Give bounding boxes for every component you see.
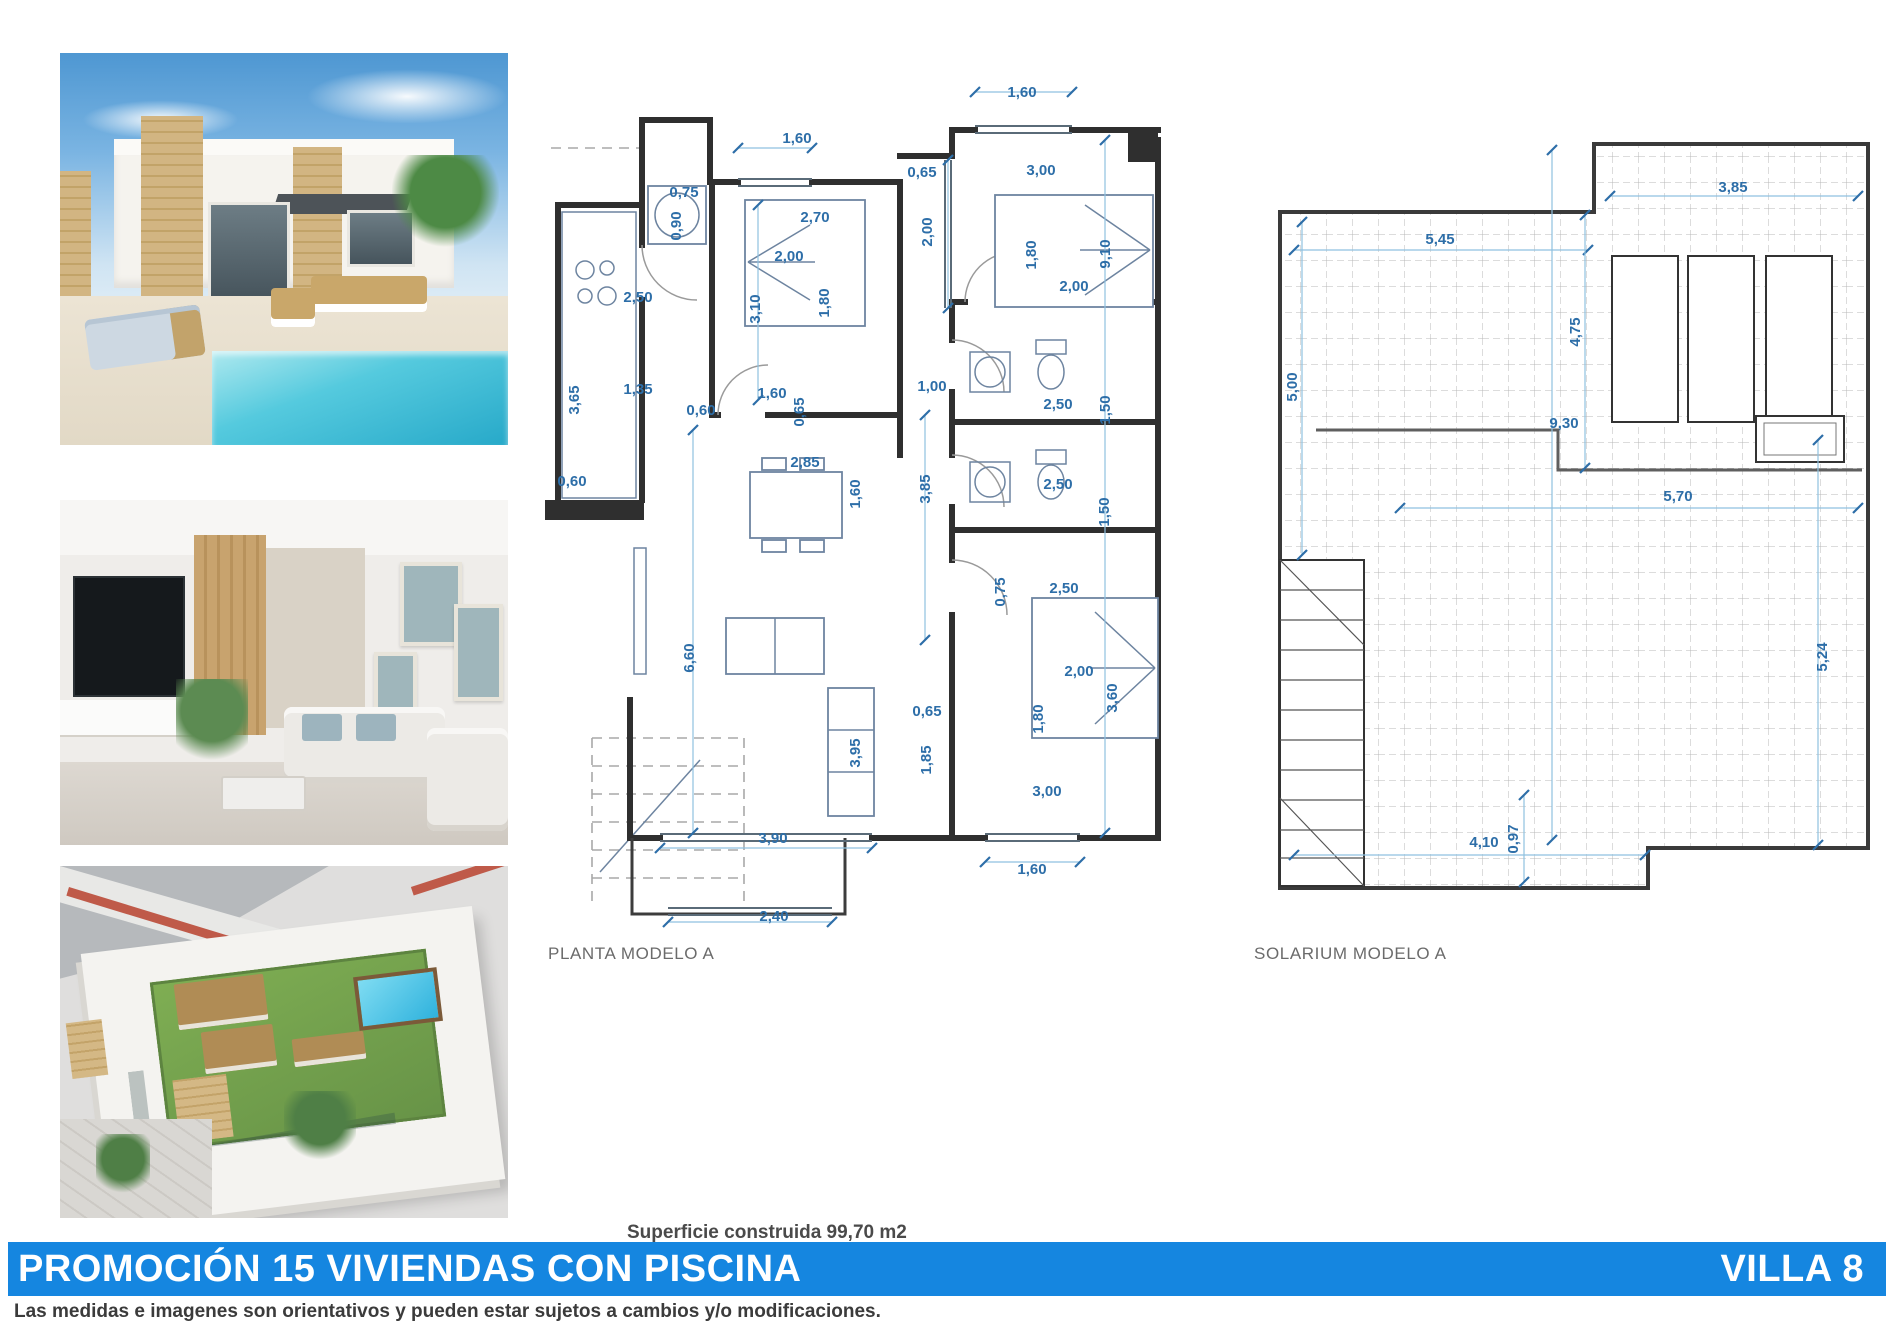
kitchen-counter (562, 212, 636, 498)
dimension-label: 5,00 (1284, 372, 1301, 401)
disclaimer-text: Las medidas e imagenes son orientativos … (14, 1301, 881, 1323)
dimension-label: 2,00 (1059, 278, 1088, 295)
bathroom2-cistern (1036, 450, 1066, 464)
dimension-label: 2,50 (623, 289, 652, 306)
tv-sideboard (634, 548, 646, 674)
dimension-label: 4,10 (1469, 834, 1498, 851)
dimension-label: 1,60 (847, 479, 864, 508)
rattan-sofa (201, 1024, 277, 1075)
dimension-label: 5,24 (1814, 642, 1831, 672)
dimension-label: 0,60 (557, 473, 586, 490)
palm-tree (392, 155, 500, 249)
floor-plan-planta: 1,601,600,653,000,750,902,702,002,001,80… (545, 80, 1195, 970)
chair (762, 540, 786, 552)
red-path (411, 866, 508, 896)
dimension-label: 0,97 (1505, 824, 1522, 853)
solarium-caption: SOLARIUM MODELO A (1254, 944, 1447, 964)
swimming-pool (212, 351, 508, 445)
dimension-label: 3,60 (1104, 683, 1121, 712)
dimension-label: 0,75 (992, 577, 1009, 606)
hob-burner (598, 287, 616, 305)
dimension-label: 2,50 (1043, 396, 1072, 413)
promotion-banner: PROMOCIÓN 15 VIVIENDAS CON PISCINA VILLA… (8, 1242, 1886, 1296)
dimension-label: 3,00 (1032, 783, 1061, 800)
hob-burner (600, 261, 614, 275)
back-wall (266, 548, 365, 727)
wall-block (1128, 132, 1158, 162)
dimension-label: 2,00 (1064, 663, 1093, 680)
dimension-label: 3,85 (917, 474, 934, 503)
dimension-label: 2,40 (759, 908, 788, 925)
villa-exterior-pool-photo (60, 53, 508, 445)
promotion-title: PROMOCIÓN 15 VIVIENDAS CON PISCINA (18, 1248, 801, 1291)
dimension-label: 2,85 (790, 454, 819, 471)
plant (284, 1091, 356, 1161)
dimension-label: 3,00 (1026, 162, 1055, 179)
wall-art-frame (454, 604, 502, 702)
dimension-label: 0,65 (912, 703, 941, 720)
stone-pillar (60, 171, 91, 296)
built-surface-note: Superficie construida 99,70 m2 (627, 1222, 907, 1244)
dimension-label: 3,85 (1718, 179, 1747, 196)
dimension-label: 1,35 (623, 381, 652, 398)
dimension-label: 2,50 (1043, 476, 1072, 493)
dimension-label: 4,75 (1567, 317, 1584, 346)
dimension-label: 1,50 (1096, 497, 1113, 526)
ceiling (60, 500, 508, 555)
dimension-label: 6,60 (681, 643, 698, 672)
sun-lounger (1766, 256, 1832, 422)
stone-pillar (141, 116, 204, 296)
coffee-table (221, 776, 306, 811)
sofa (427, 728, 508, 832)
dimension-label: 5,70 (1663, 488, 1692, 505)
stone-pillar (66, 1019, 108, 1079)
outdoor-sofa (311, 276, 427, 311)
wall-block (545, 500, 644, 520)
tv-screen (73, 576, 185, 697)
tv-cabinet (60, 700, 194, 735)
dimension-label: 0,65 (907, 164, 936, 181)
dining-table (750, 472, 842, 538)
bathroom1-toilet (1038, 355, 1064, 389)
dimension-label: 3,95 (847, 738, 864, 767)
stairs-direction-line (600, 760, 700, 872)
chair (762, 458, 786, 470)
dimension-label: 0,75 (669, 184, 698, 201)
dimension-label: 1,60 (1017, 861, 1046, 878)
dimension-label: 0,60 (686, 402, 715, 419)
cushion (302, 714, 342, 742)
bathroom2-vanity (970, 462, 1010, 502)
dimension-label: 1,50 (1097, 395, 1114, 424)
brochure-page: { "banner": { "title": "PROMOCIÓN 15 VIV… (0, 0, 1900, 1342)
dimension-label: 2,70 (800, 209, 829, 226)
rooftop-jacuzzi (353, 967, 443, 1031)
wall-art-frame (374, 652, 418, 715)
dimension-label: 3,65 (566, 385, 583, 414)
hob-burner (578, 289, 592, 303)
dimension-label: 1,80 (816, 288, 833, 317)
dimension-label: 9,30 (1549, 415, 1578, 432)
plant (96, 1134, 150, 1197)
dimension-label: 0,90 (668, 211, 685, 240)
dimension-label: 1,85 (918, 745, 935, 774)
dimension-label: 3,10 (747, 294, 764, 323)
bathroom1-cistern (1036, 340, 1066, 354)
sun-lounger (1612, 256, 1678, 422)
wall-art-frame (400, 562, 462, 646)
dimension-label: 1,60 (757, 385, 786, 402)
dimension-label: 9,10 (1097, 239, 1114, 268)
floor-plan-solarium: 3,855,454,755,009,305,705,244,100,97 (1255, 100, 1900, 910)
glass-door (208, 202, 290, 302)
dimension-label: 1,60 (1007, 84, 1036, 101)
sun-lounger (1688, 256, 1754, 422)
dimension-label: 1,80 (1030, 704, 1047, 733)
outdoor-armchair (271, 288, 316, 327)
dimension-label: 2,00 (774, 248, 803, 265)
plant (176, 679, 248, 769)
dimension-label: 3,90 (758, 830, 787, 847)
dimension-label: 1,80 (1023, 240, 1040, 269)
solarium-stairs (1280, 560, 1364, 886)
chair (800, 540, 824, 552)
stone-pillar (293, 147, 342, 296)
dimension-label: 2,00 (919, 217, 936, 246)
dimension-label: 2,50 (1049, 580, 1078, 597)
dimension-label: 0,65 (791, 397, 808, 426)
cushion (356, 714, 396, 742)
dimension-label: 5,45 (1425, 231, 1454, 248)
dimension-label: 1,00 (917, 378, 946, 395)
cloud (306, 69, 508, 124)
planta-caption: PLANTA MODELO A (548, 944, 714, 964)
dimension-label: 1,60 (782, 130, 811, 147)
hob-burner (576, 261, 594, 279)
aerial-rooftop-photo (60, 866, 508, 1218)
living-room-photo (60, 500, 508, 845)
villa-number: VILLA 8 (1720, 1248, 1864, 1291)
